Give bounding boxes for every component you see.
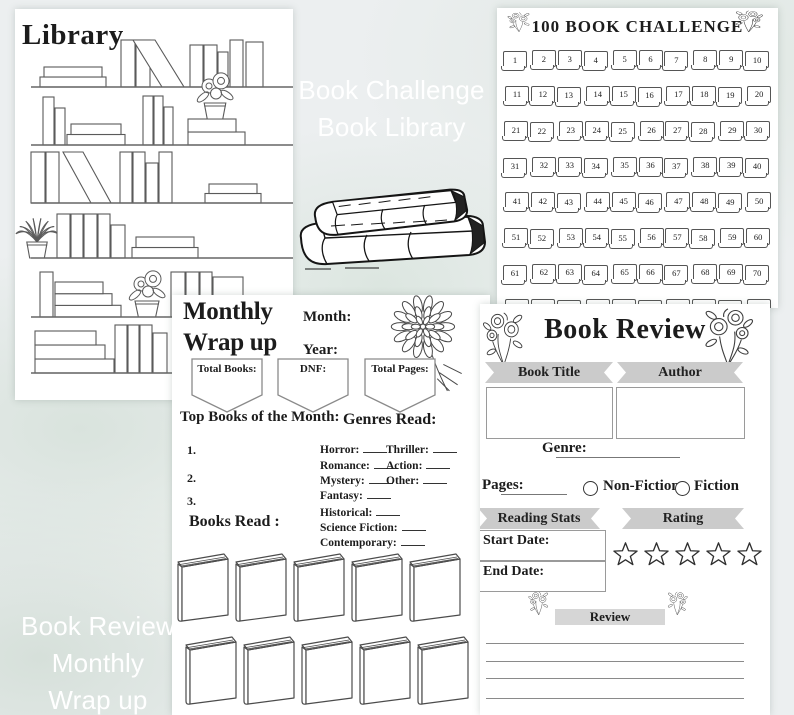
challenge-book-tile: 62: [532, 264, 556, 281]
challenge-book-tile: 69: [719, 264, 743, 281]
challenge-book-tile: 2: [532, 50, 556, 67]
challenge-book-tile: 24: [585, 121, 609, 138]
challenge-book-tile: 14: [586, 86, 610, 103]
star-icon: [644, 542, 669, 566]
challenge-book-tile: 70: [745, 265, 769, 282]
challenge-book-tile: 59: [720, 228, 744, 245]
challenge-book-tile: 52: [530, 229, 554, 246]
books-read-label: Books Read :: [189, 513, 280, 531]
challenge-book-tile: 64: [584, 265, 608, 282]
challenge-book-tile: 3: [558, 50, 582, 67]
challenge-book-tile: 11: [505, 86, 529, 103]
challenge-book-tile: 54: [585, 228, 609, 245]
top-circle-text: Book ChallengeBook Library: [282, 72, 501, 146]
challenge-book-tile: 4: [584, 51, 608, 68]
review-line: [486, 677, 744, 679]
review-line: [486, 642, 744, 644]
challenge-book-tile: 22: [530, 122, 554, 139]
pages-blank-line: [501, 493, 567, 495]
challenge-book-tile: 16: [638, 87, 662, 104]
stat-banner: Total Books:: [191, 358, 263, 414]
challenge-book-tile: 8: [693, 50, 717, 67]
challenge-book-tile: 6: [639, 50, 663, 67]
challenge-book-tile: 17: [666, 86, 690, 103]
challenge-book-tile: 51: [504, 228, 528, 245]
challenge-book-tile: 44: [586, 192, 610, 209]
challenge-book-tile: 49: [718, 193, 742, 210]
challenge-book-tile: 36: [639, 157, 663, 174]
challenge-book-tile: 43: [557, 193, 581, 210]
non-fiction-label: Non-Fiction: [603, 478, 680, 495]
challenge-book-tile: 40: [745, 158, 769, 175]
challenge-book-tile: 58: [691, 229, 715, 246]
book-read-icon: [297, 630, 357, 710]
genres-read-label: Genres Read:: [343, 411, 436, 429]
challenge-book-tile: 45: [612, 192, 636, 209]
genre-blank-line: [556, 456, 680, 458]
challenge-book-tile: 18: [692, 86, 716, 103]
genre-label: Genre:: [542, 440, 587, 457]
challenge-book-tile: 28: [691, 122, 715, 139]
genre-item: Science Fiction:: [320, 520, 426, 534]
challenge-book-tile: 57: [665, 228, 689, 245]
circle-text-line: Wrap up: [8, 682, 188, 715]
genre-item: Mystery:: [320, 473, 393, 487]
challenge-book-tile: 48: [692, 192, 716, 209]
book-challenge-page: 100 BOOK CHALLENGE 123456789101112131415…: [497, 8, 778, 308]
challenge-book-tile: 15: [612, 86, 636, 103]
challenge-book-tile: 19: [718, 87, 742, 104]
star-icon: [706, 542, 731, 566]
challenge-book-tile: 23: [559, 121, 583, 138]
challenge-book-tile: 60: [746, 228, 770, 245]
top-book-list-number: 3.: [187, 494, 196, 509]
book-read-icon: [355, 630, 415, 710]
challenge-book-tile: 32: [532, 157, 556, 174]
genre-blank: [376, 505, 400, 516]
challenge-book-tile: 41: [505, 192, 529, 209]
top-book-list-number: 2.: [187, 471, 196, 486]
start-date-label: Start Date:: [480, 531, 605, 549]
non-fiction-radio: [583, 481, 598, 496]
book-review-page: Book Review Book Title Author Genre: Pag…: [480, 304, 770, 715]
stat-banner: Total Pages:: [364, 358, 436, 414]
book-title-banner: Book Title: [485, 362, 613, 383]
stacked-books-illustration: [287, 180, 499, 275]
rating-stars: [613, 542, 763, 566]
fiction-radio: [675, 481, 690, 496]
genre-item: Fantasy:: [320, 488, 391, 502]
book-read-icon: [231, 547, 291, 627]
reading-stats-banner: Reading Stats: [480, 508, 600, 529]
genre-item: Thriller:: [386, 442, 457, 456]
challenge-book-tile: 56: [640, 228, 664, 245]
challenge-book-tile: 37: [664, 158, 688, 175]
challenge-book-tile: 12: [531, 86, 555, 103]
genre-blank: [367, 488, 391, 499]
circle-text-line: Monthly: [8, 645, 188, 682]
genre-item: Action:: [386, 458, 450, 472]
challenge-book-tile: 20: [747, 86, 771, 103]
review-line: [486, 660, 744, 662]
challenge-book-tile: 25: [611, 122, 635, 139]
book-read-icon: [405, 547, 465, 627]
top-book-list-number: 1.: [187, 443, 196, 458]
challenge-book-tile: 10: [745, 51, 769, 68]
stat-banner-label: Total Pages:: [364, 363, 436, 375]
author-input-box: [616, 387, 745, 439]
challenge-book-tile: 50: [747, 192, 771, 209]
challenge-book-tile: 26: [640, 121, 664, 138]
pages-label: Pages:: [482, 477, 524, 494]
book-read-icon: [413, 630, 473, 710]
end-date-box: End Date:: [480, 561, 606, 592]
genre-item: Other:: [386, 473, 447, 487]
challenge-book-tile: 61: [503, 265, 527, 282]
challenge-book-tile: 31: [503, 158, 527, 175]
challenge-book-tile: 7: [664, 51, 688, 68]
challenge-book-tile: 65: [613, 264, 637, 281]
challenge-book-tile: 33: [558, 157, 582, 174]
bottom-circle-text: Book ReviewMonthlyWrap up: [8, 608, 188, 715]
challenge-book-tile: 55: [611, 229, 635, 246]
challenge-title: 100 BOOK CHALLENGE: [497, 17, 778, 37]
genre-blank: [363, 442, 387, 453]
challenge-book-tile: 47: [666, 192, 690, 209]
fiction-label: Fiction: [694, 478, 739, 495]
challenge-book-tile: 46: [638, 193, 662, 210]
star-icon: [737, 542, 762, 566]
top-books-label: Top Books of the Month:: [180, 409, 339, 426]
review-page-title: Book Review: [480, 314, 770, 346]
stat-banner-label: DNF:: [277, 363, 349, 375]
circle-text-line: Book Library: [282, 109, 501, 146]
challenge-book-tile: 9: [719, 50, 743, 67]
genre-blank: [402, 520, 426, 531]
monthly-title: Monthly Wrap up: [183, 296, 277, 358]
genre-blank: [433, 442, 457, 453]
rating-banner: Rating: [622, 508, 744, 529]
book-read-icon: [347, 547, 407, 627]
challenge-book-tile: 53: [559, 228, 583, 245]
stat-banner: DNF:: [277, 358, 349, 414]
challenge-book-tile: 35: [613, 157, 637, 174]
end-date-label: End Date:: [480, 562, 605, 580]
star-icon: [675, 542, 700, 566]
challenge-book-tile: 27: [665, 121, 689, 138]
challenge-book-tile: 34: [584, 158, 608, 175]
challenge-book-tile: 67: [664, 265, 688, 282]
circle-text-line: Book Challenge: [282, 72, 501, 109]
challenge-book-tile: 30: [746, 121, 770, 138]
challenge-book-tile: 13: [557, 87, 581, 104]
year-field-label: Year:: [303, 342, 338, 359]
month-field-label: Month:: [303, 309, 351, 326]
star-icon: [613, 542, 638, 566]
book-title-input-box: [486, 387, 613, 439]
review-section-bar: Review: [555, 609, 665, 625]
genre-item: Horror:: [320, 442, 387, 456]
challenge-book-tile: 38: [693, 157, 717, 174]
genre-item: Historical:: [320, 505, 400, 519]
genre-blank: [401, 535, 425, 546]
challenge-book-tile: 39: [719, 157, 743, 174]
challenge-book-tile: 21: [504, 121, 528, 138]
book-read-icon: [289, 547, 349, 627]
review-line: [486, 697, 744, 699]
genre-blank: [423, 473, 447, 484]
challenge-book-tile: 29: [720, 121, 744, 138]
challenge-book-tile: 5: [613, 50, 637, 67]
bottom-overlay-circle: Book ReviewMonthlyWrap up: [0, 577, 198, 715]
challenge-book-tile: 66: [639, 264, 663, 281]
genre-blank: [426, 458, 450, 469]
circle-text-line: Book Review: [8, 608, 188, 645]
challenge-book-tile: 42: [531, 192, 555, 209]
start-date-box: Start Date:: [480, 530, 606, 561]
monthly-wrapup-page: Monthly Wrap up Month: Year: Total Books…: [172, 295, 490, 715]
author-banner: Author: [617, 362, 743, 383]
challenge-book-tile: 1: [503, 51, 527, 68]
printable-planner-collage: Library 100 BOOK CHALLENGE 1234567891011…: [0, 0, 794, 715]
book-read-icon: [239, 630, 299, 710]
challenge-book-tile: 63: [558, 264, 582, 281]
challenge-book-tile: 68: [693, 264, 717, 281]
stat-banner-label: Total Books:: [191, 363, 263, 375]
